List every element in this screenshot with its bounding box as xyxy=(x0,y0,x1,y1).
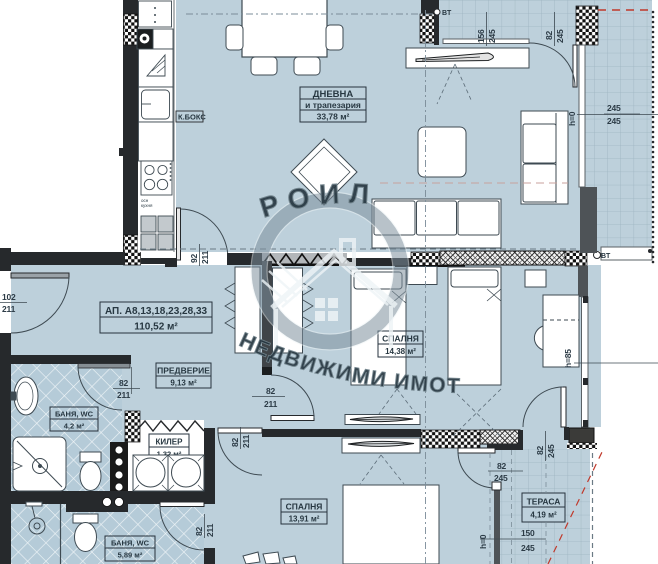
svg-text:82: 82 xyxy=(230,437,240,447)
svg-text:211: 211 xyxy=(264,399,278,409)
svg-text:АП. А8,13,18,23,28,33: АП. А8,13,18,23,28,33 xyxy=(105,306,208,317)
svg-text:СПАЛНЯ: СПАЛНЯ xyxy=(286,502,323,512)
svg-text:5,89 м²: 5,89 м² xyxy=(118,551,143,560)
svg-text:245: 245 xyxy=(521,543,535,553)
svg-text:БАНЯ, WC: БАНЯ, WC xyxy=(55,410,94,419)
svg-text:211: 211 xyxy=(241,434,251,448)
svg-text:ДНЕВНА: ДНЕВНА xyxy=(313,89,354,100)
svg-text:33,78 м²: 33,78 м² xyxy=(317,112,350,122)
svg-text:82: 82 xyxy=(119,378,129,388)
svg-text:245: 245 xyxy=(607,116,621,126)
svg-text:211: 211 xyxy=(200,250,210,264)
svg-text:9,13 м²: 9,13 м² xyxy=(170,379,197,388)
svg-text:92: 92 xyxy=(189,253,199,263)
svg-text:245: 245 xyxy=(494,473,508,483)
svg-text:245: 245 xyxy=(607,103,621,113)
svg-text:К.БОКС: К.БОКС xyxy=(178,113,206,122)
svg-text:4,19 м²: 4,19 м² xyxy=(530,511,557,520)
svg-text:245: 245 xyxy=(555,29,565,43)
svg-text:82: 82 xyxy=(535,445,545,455)
svg-text:82: 82 xyxy=(194,526,204,536)
svg-text:h=0: h=0 xyxy=(567,111,577,126)
svg-text:150: 150 xyxy=(521,528,535,538)
svg-text:211: 211 xyxy=(205,523,215,537)
svg-text:245: 245 xyxy=(546,444,556,458)
svg-text:БАНЯ, WC: БАНЯ, WC xyxy=(111,539,150,548)
svg-text:кухня: кухня xyxy=(141,203,153,208)
svg-text:и трапезария: и трапезария xyxy=(305,100,361,110)
svg-text:h=85: h=85 xyxy=(563,349,573,368)
svg-text:82: 82 xyxy=(544,30,554,40)
svg-text:ТЕРАСА: ТЕРАСА xyxy=(527,497,561,507)
svg-text:СПАЛНЯ: СПАЛНЯ xyxy=(382,334,419,344)
svg-text:211: 211 xyxy=(117,390,131,400)
svg-text:КИЛЕР: КИЛЕР xyxy=(156,438,184,447)
svg-text:13,91 м²: 13,91 м² xyxy=(289,515,320,524)
svg-text:102: 102 xyxy=(2,292,16,302)
svg-text:ПРЕДВЕРИЕ: ПРЕДВЕРИЕ xyxy=(157,366,210,376)
svg-text:4,2 м²: 4,2 м² xyxy=(64,422,85,431)
svg-text:211: 211 xyxy=(2,304,16,314)
svg-text:h=0: h=0 xyxy=(478,534,488,549)
svg-text:82: 82 xyxy=(497,461,507,471)
svg-text:14,38 м²: 14,38 м² xyxy=(385,347,416,356)
svg-text:BT: BT xyxy=(442,10,452,17)
svg-text:110,52 м²: 110,52 м² xyxy=(134,322,178,333)
svg-text:245: 245 xyxy=(487,29,497,43)
svg-text:BT: BT xyxy=(601,253,611,260)
svg-text:156: 156 xyxy=(476,29,486,43)
svg-text:82: 82 xyxy=(266,386,276,396)
